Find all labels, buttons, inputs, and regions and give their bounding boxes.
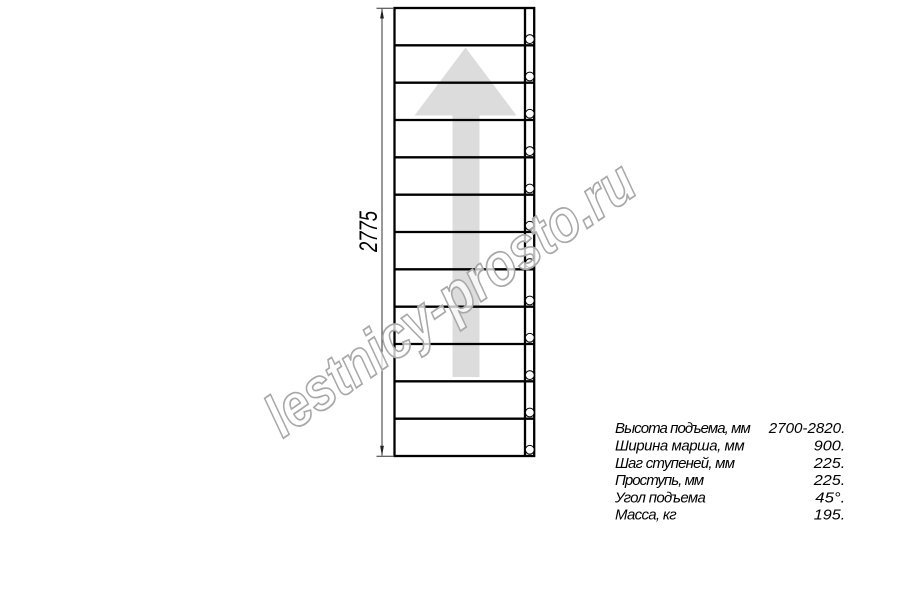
svg-text:2775: 2775: [355, 211, 383, 253]
svg-text:Масса, кг: Масса, кг: [615, 507, 677, 524]
svg-text:2700-2820.: 2700-2820.: [768, 420, 846, 437]
svg-text:900.: 900.: [814, 438, 846, 455]
svg-text:Высота подъема, мм: Высота подъема, мм: [615, 420, 751, 437]
svg-text:225.: 225.: [813, 455, 846, 472]
svg-text:Угол подъема: Угол подъема: [614, 489, 706, 506]
svg-text:195.: 195.: [814, 507, 846, 524]
svg-text:Ширина марша, мм: Ширина марша, мм: [615, 438, 745, 455]
svg-text:Проступь, мм: Проступь, мм: [615, 472, 704, 489]
svg-text:45°.: 45°.: [815, 489, 845, 506]
svg-text:225.: 225.: [813, 472, 846, 489]
svg-text:Шаг ступеней, мм: Шаг ступеней, мм: [615, 455, 735, 472]
